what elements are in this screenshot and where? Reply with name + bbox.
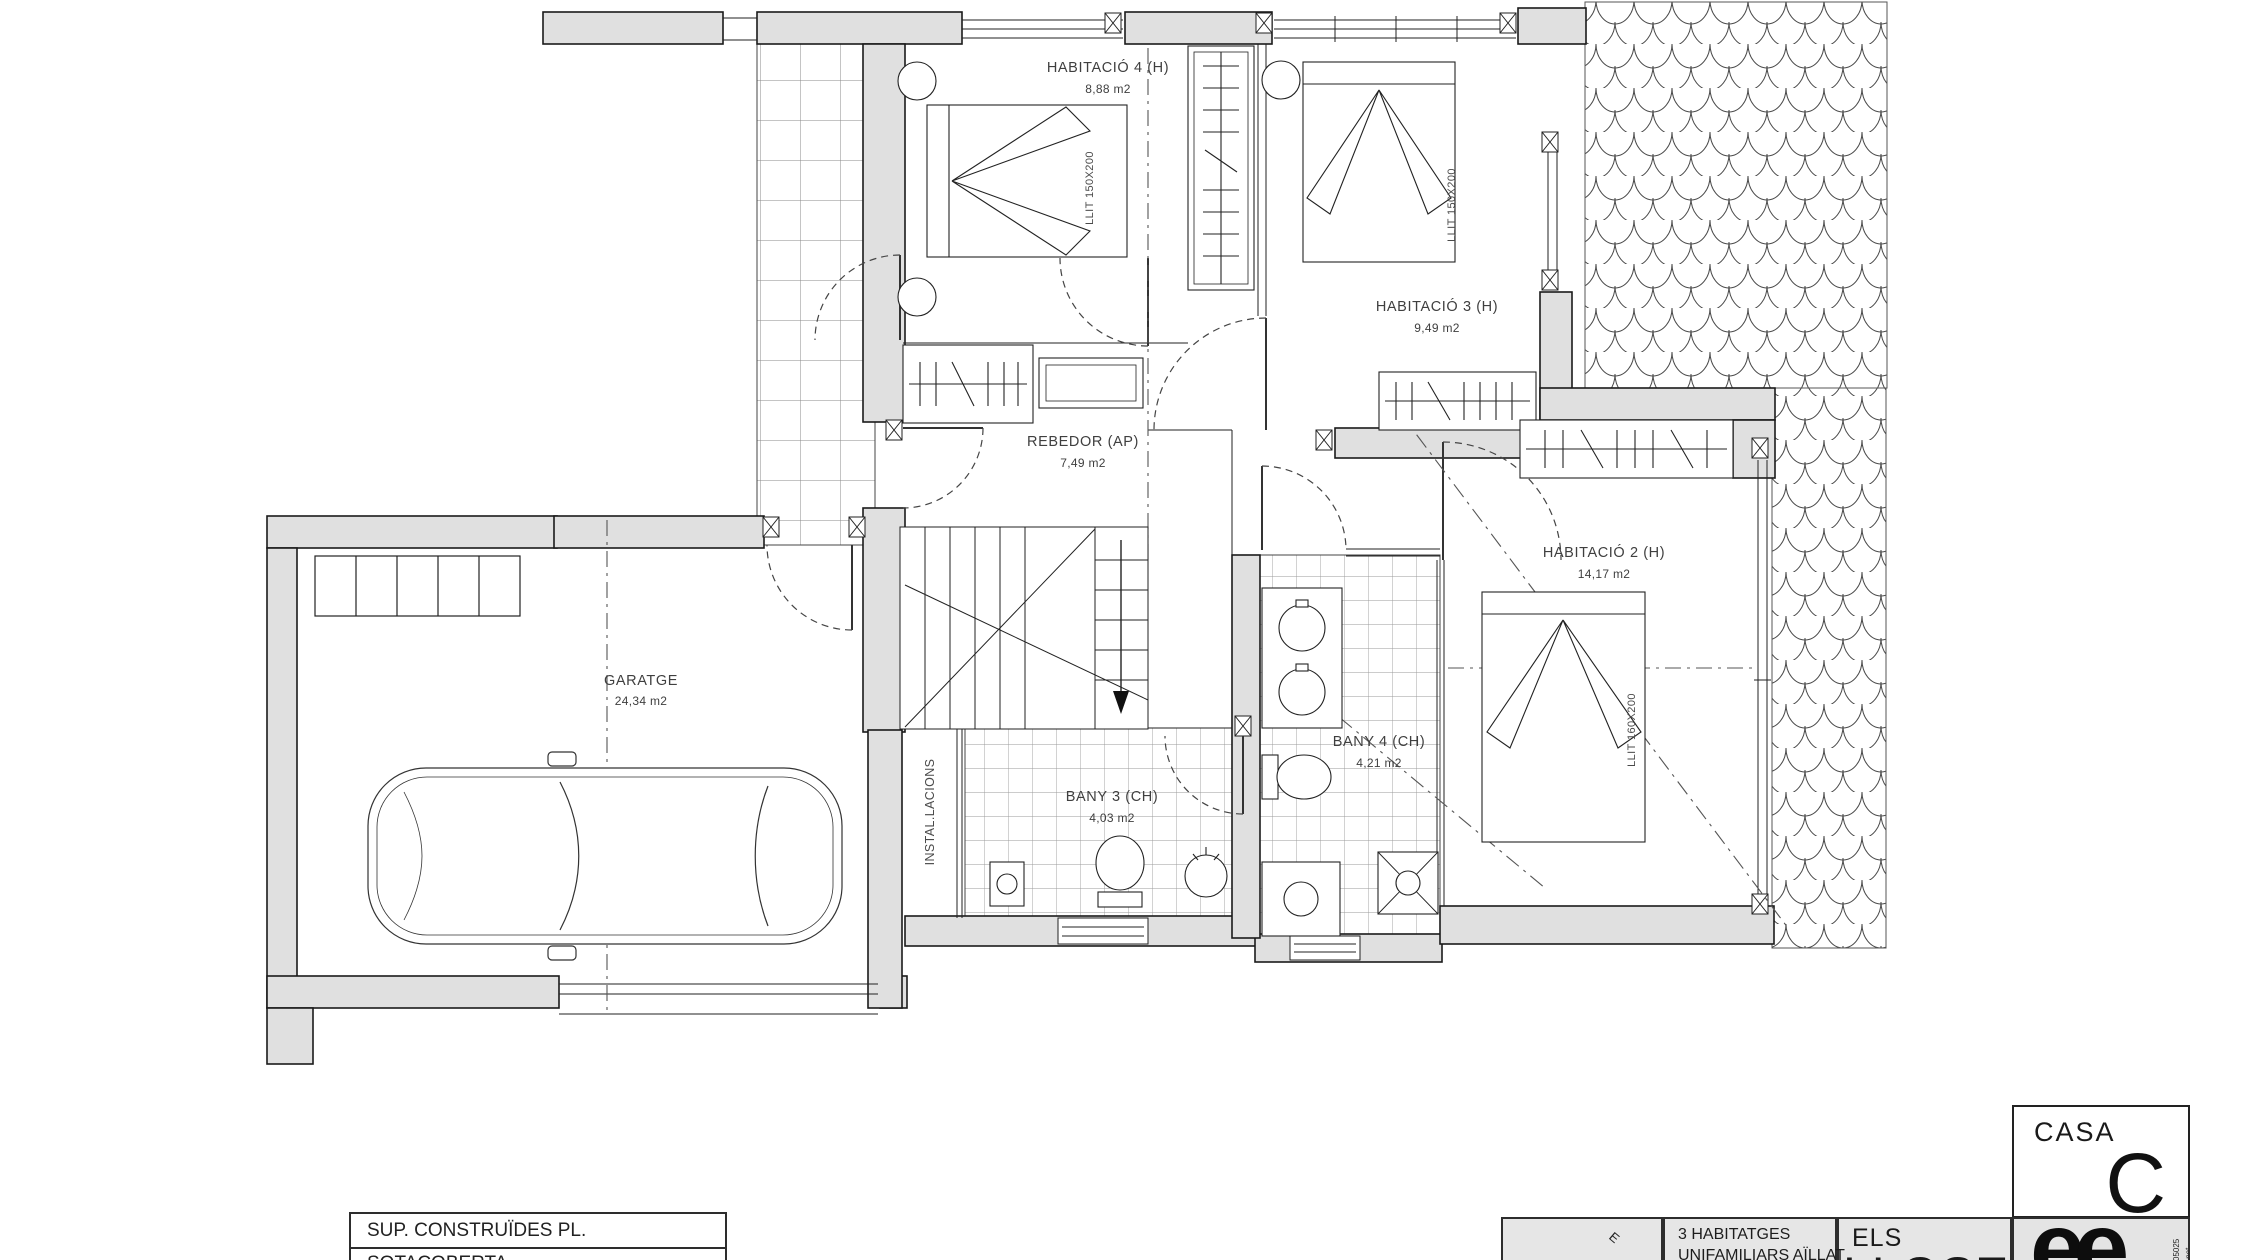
program-line1: 3 HABITATGES <box>1678 1224 1790 1245</box>
toilet-bany4 <box>1262 755 1331 799</box>
garage-shelf <box>315 556 520 616</box>
nightstand <box>898 62 936 100</box>
room-label-habitacio3: HABITACIÓ 3 (H) <box>1376 299 1498 315</box>
room-label-bany3: BANY 3 (CH) <box>1066 789 1159 805</box>
room-area-bany4: 4,21 m2 <box>1356 756 1401 770</box>
room-label-rebedor: REBEDOR (AP) <box>1027 434 1139 450</box>
bed-label-hab2: LLIT 160X200 <box>1626 693 1638 767</box>
side-code-number: 05025 <box>2172 1239 2181 1260</box>
bed-hab2 <box>1482 592 1645 842</box>
wardrobe-hall <box>1379 372 1536 430</box>
room-area-habitacio3: 9,49 m2 <box>1414 321 1459 335</box>
floor-plan-sheet: HABITACIÓ 4 (H) 8,88 m2 HABITACIÓ 3 (H) … <box>0 0 2241 1260</box>
room-area-bany3: 4,03 m2 <box>1089 811 1134 825</box>
room-label-garatge: GARATGE <box>604 673 678 689</box>
terrace-tiles <box>757 44 875 545</box>
side-code-domain: .net <box>2184 1248 2190 1260</box>
shower-bany4 <box>1262 862 1340 936</box>
logo-cell: ee 05025 .net <box>2012 1217 2190 1260</box>
wardrobe-hab4 <box>1188 46 1254 290</box>
room-label-bany4: BANY 4 (CH) <box>1333 734 1426 750</box>
summary-table-header: SUP. CONSTRUÏDES PL. SOTACOBERTA <box>351 1214 725 1249</box>
room-label-installacions: INSTAL.LACIONS <box>923 759 937 866</box>
bed-label-hab3: LLIT 150X200 <box>1446 168 1458 242</box>
nightstand <box>898 278 936 316</box>
program-line2: UNIFAMILIARS AÏLLAT <box>1678 1245 1845 1260</box>
house-label: CASA <box>2034 1117 2116 1148</box>
room-label-habitacio2: HABITACIÓ 2 (H) <box>1543 545 1665 561</box>
room-area-garatge: 24,34 m2 <box>615 694 667 708</box>
bed-hab3 <box>1262 61 1455 262</box>
staircase <box>900 527 1148 729</box>
shower-tray <box>1378 852 1438 914</box>
room-area-habitacio2: 14,17 m2 <box>1578 567 1630 581</box>
room-area-rebedor: 7,49 m2 <box>1060 456 1105 470</box>
surface-summary-table: SUP. CONSTRUÏDES PL. SOTACOBERTA <box>349 1212 727 1260</box>
bed-label-hab4: LLIT 150X200 <box>1084 151 1096 225</box>
toilet-bany3 <box>1096 836 1144 907</box>
room-label-habitacio4: HABITACIÓ 4 (H) <box>1047 60 1169 76</box>
plan-drawing <box>0 0 2241 1260</box>
wardrobe-hab2 <box>1520 420 1733 478</box>
car-mirror-left <box>548 752 576 766</box>
nightstand <box>1262 61 1300 99</box>
wardrobe-rebedor <box>903 345 1033 423</box>
house-id-box: CASA C <box>2012 1105 2190 1218</box>
titleblock-north-cell <box>1501 1217 1663 1260</box>
room-area-habitacio4: 8,88 m2 <box>1085 82 1130 96</box>
dresser-rebedor <box>1039 358 1143 408</box>
car <box>368 752 842 960</box>
car-mirror-right <box>548 946 576 960</box>
double-sink-counter <box>1262 588 1342 728</box>
pedestal-sink-bany3 <box>990 862 1024 906</box>
company-logo-icon: ee <box>2030 1217 2117 1260</box>
